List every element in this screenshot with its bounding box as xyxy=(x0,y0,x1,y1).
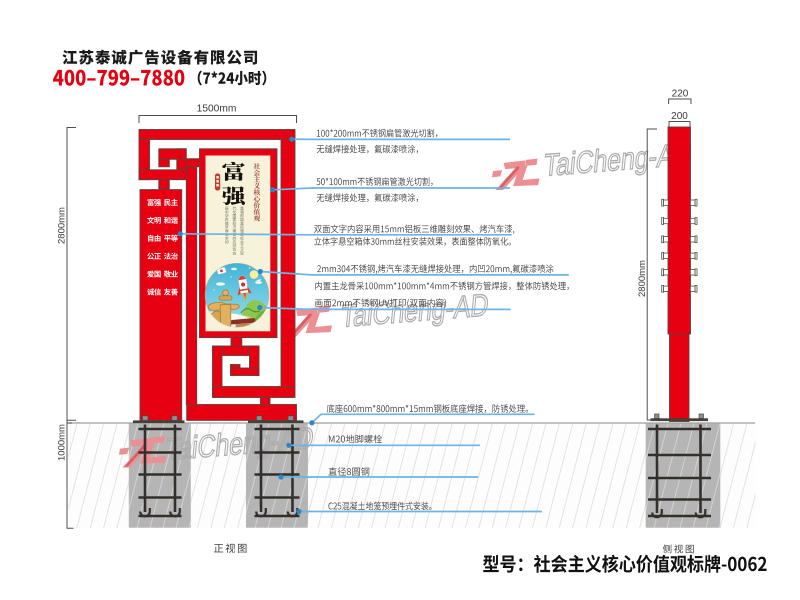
svg-text:TaiCheng-AD: TaiCheng-AD xyxy=(339,287,490,334)
svg-text:1000mm: 1000mm xyxy=(57,424,68,461)
svg-text:2800mm: 2800mm xyxy=(637,260,648,297)
svg-text:2800mm: 2800mm xyxy=(57,207,68,244)
svg-text:220: 220 xyxy=(672,89,689,100)
svg-text:200: 200 xyxy=(671,111,688,122)
svg-text:1500mm: 1500mm xyxy=(197,104,237,115)
